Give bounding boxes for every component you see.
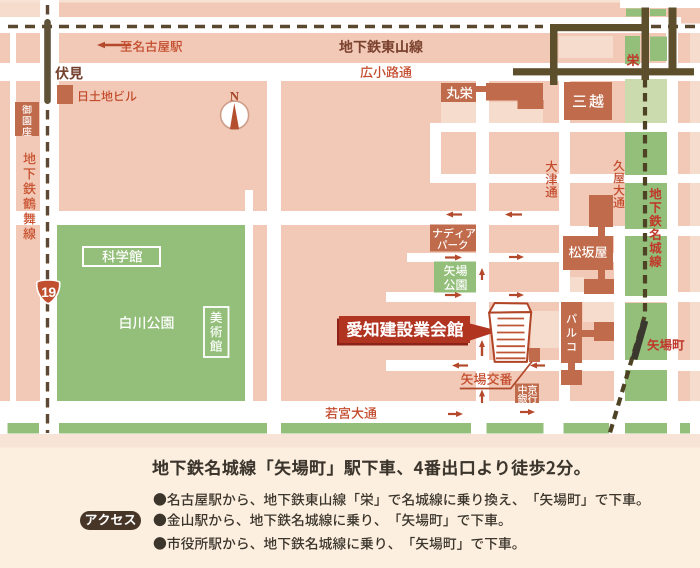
svg-text:19: 19 <box>41 284 56 300</box>
